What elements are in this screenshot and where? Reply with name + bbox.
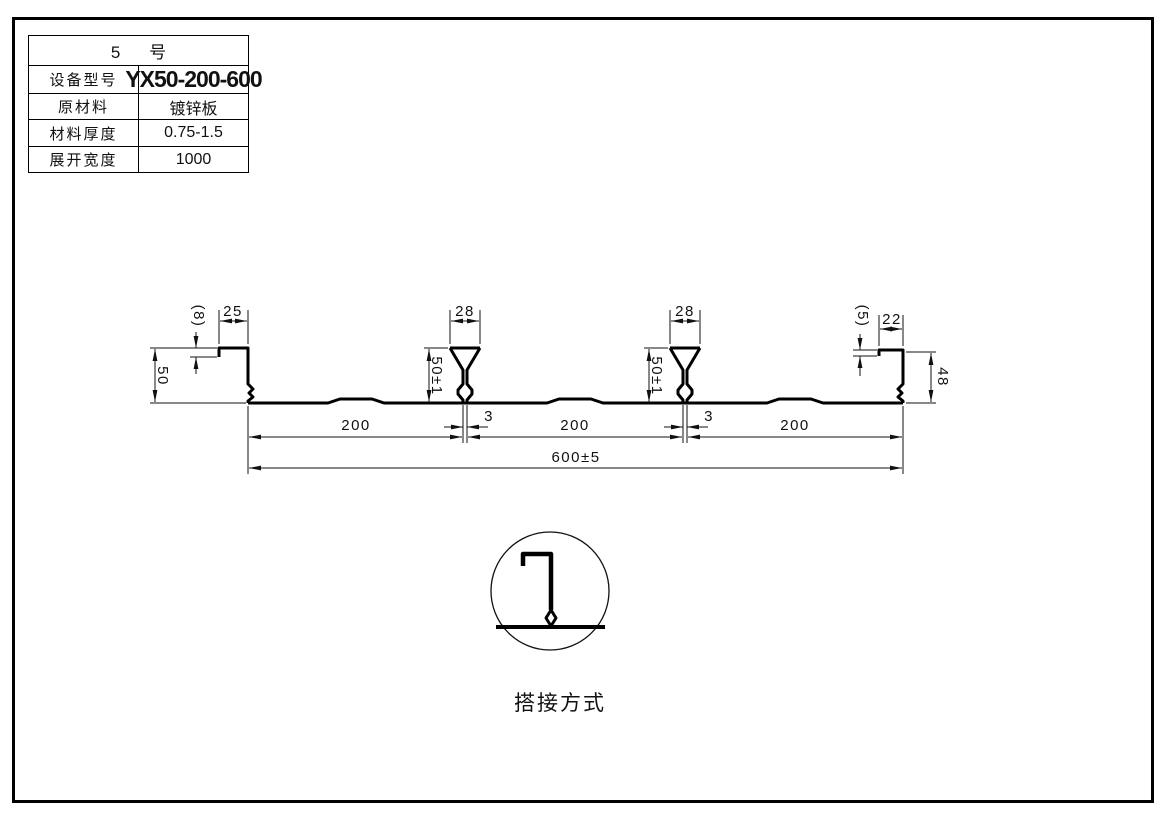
dim-rib1-top-label: 28 bbox=[455, 303, 475, 320]
dim-rib2-height-label: 50±1 bbox=[648, 356, 665, 395]
dim-total-width-label: 600±5 bbox=[551, 449, 600, 466]
dim-rib2-base-label: 3 bbox=[704, 408, 714, 425]
detail-interlock-node bbox=[546, 610, 556, 626]
dim-left-lip-label: (8) bbox=[190, 305, 207, 328]
dim-left-height: 50 bbox=[150, 348, 246, 403]
dim-span3-label: 200 bbox=[780, 417, 810, 434]
lap-joint-detail: 搭接方式 bbox=[491, 532, 609, 715]
dim-left-flange: 25 bbox=[219, 303, 248, 344]
profile-outline bbox=[219, 348, 903, 403]
dim-span2-label: 200 bbox=[560, 417, 590, 434]
dim-left-height-label: 50 bbox=[154, 366, 171, 386]
dim-rib1-base-label: 3 bbox=[484, 408, 494, 425]
dimensions: 50 (8) 25 28 bbox=[150, 303, 951, 474]
dim-right-height: 48 bbox=[906, 352, 951, 403]
dim-span2: 200 bbox=[468, 417, 682, 437]
dim-left-lip: (8) bbox=[190, 305, 217, 374]
profile-drawing: 50 (8) 25 28 bbox=[0, 0, 1169, 827]
dim-left-flange-label: 25 bbox=[223, 303, 243, 320]
profile-rib-1 bbox=[450, 348, 480, 403]
dim-span1-label: 200 bbox=[341, 417, 371, 434]
dim-right-height-label: 48 bbox=[934, 367, 951, 387]
dim-span1: 200 bbox=[249, 417, 462, 437]
dim-right-flange: 22 bbox=[879, 311, 903, 346]
dim-right-lip: (5) bbox=[853, 305, 877, 376]
drawing-sheet: 5 号 设备型号 YX50-200-600 原材料 镀锌板 材料厚度 0.75-… bbox=[0, 0, 1169, 827]
dim-rib1-top: 28 bbox=[450, 303, 480, 344]
dim-total-width: 600±5 bbox=[249, 449, 902, 468]
detail-hook-sheet bbox=[523, 554, 551, 610]
dim-rib1-height: 50±1 bbox=[424, 348, 448, 402]
detail-caption: 搭接方式 bbox=[514, 692, 606, 715]
profile-base bbox=[248, 399, 903, 403]
dim-rib2-top-label: 28 bbox=[675, 303, 695, 320]
profile-rib-2 bbox=[670, 348, 700, 403]
profile-right-edge bbox=[879, 350, 903, 403]
profile-left-edge bbox=[219, 348, 253, 403]
dim-right-flange-label: 22 bbox=[882, 311, 902, 328]
dim-rib1-height-label: 50±1 bbox=[428, 356, 445, 395]
dim-rib2-top: 28 bbox=[670, 303, 700, 344]
dim-span3: 200 bbox=[688, 417, 902, 437]
dim-right-lip-label: (5) bbox=[854, 305, 871, 328]
dim-rib2-height: 50±1 bbox=[644, 348, 668, 402]
